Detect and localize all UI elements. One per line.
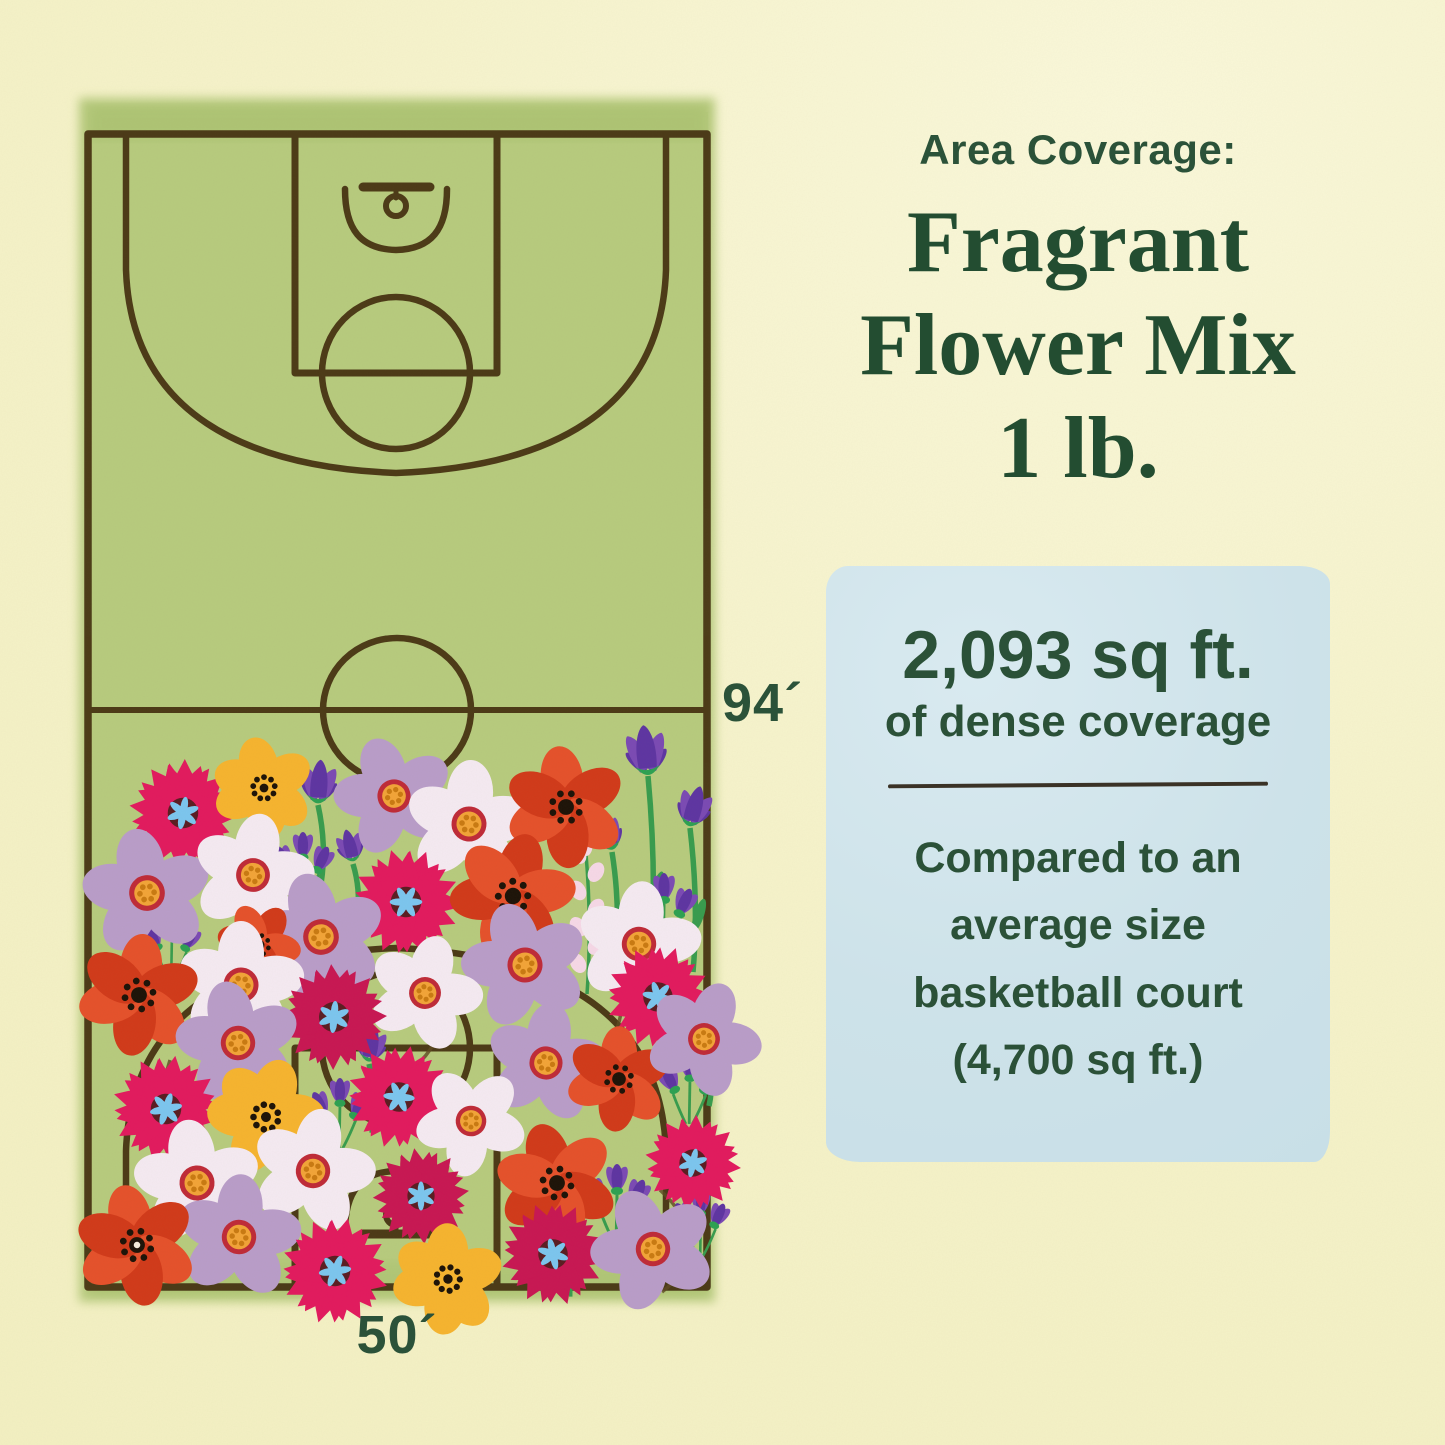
court-width-label: 50´: [351, 1304, 443, 1366]
area-coverage-heading: Area Coverage:: [778, 126, 1378, 174]
comparison-line-3: basketball court: [913, 960, 1243, 1027]
product-title-line-3: 1 lb.: [778, 398, 1378, 501]
area-coverage-infographic: 94´ 50´ Area Coverage: Fragrant Flower M…: [0, 0, 1445, 1445]
hand-drawn-divider: [888, 782, 1268, 789]
comparison-line-2: average size: [913, 892, 1243, 959]
coverage-subtitle: of dense coverage: [885, 697, 1271, 747]
comparison-text: Compared to an average size basketball c…: [913, 825, 1243, 1093]
coverage-info-box: 2,093 sq ft. of dense coverage Compared …: [826, 566, 1330, 1162]
product-title-line-1: Fragrant: [778, 192, 1378, 295]
product-title: Fragrant Flower Mix 1 lb.: [778, 192, 1378, 501]
comparison-line-1: Compared to an: [913, 825, 1243, 892]
product-title-line-2: Flower Mix: [778, 295, 1378, 398]
comparison-line-4: (4,700 sq ft.): [913, 1027, 1243, 1094]
coverage-value: 2,093 sq ft.: [902, 620, 1254, 691]
court-length-label: 94´: [722, 672, 803, 734]
